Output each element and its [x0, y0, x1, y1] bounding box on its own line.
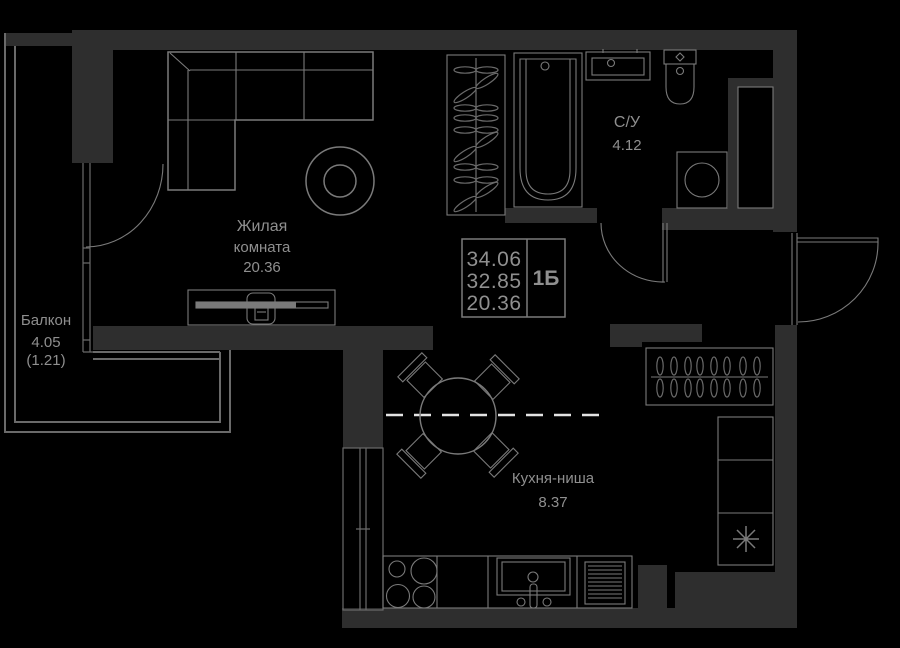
- wall-balcony-top: [5, 33, 72, 46]
- balcony-window: [83, 163, 93, 352]
- balcony-parapet: [93, 352, 220, 359]
- armchair: [306, 147, 374, 215]
- chair: [398, 353, 445, 400]
- wall-left-upper: [72, 30, 113, 163]
- info-living-area: 20.36: [466, 292, 521, 315]
- stove: [387, 558, 438, 608]
- wall-bathroom-bottom-left: [505, 208, 597, 223]
- bathroom-door-leaf: [663, 223, 667, 282]
- kitchen-counter: [383, 556, 632, 608]
- balcony-label: Балкон: [21, 312, 71, 329]
- living-room-label-2: комната: [234, 239, 291, 256]
- balcony-outer-wall: [5, 33, 230, 432]
- entry-door-swing-arc: [798, 242, 878, 322]
- info-flat-type: 1Б: [533, 267, 560, 290]
- wall-right-lower: [775, 325, 797, 627]
- tv-console: [188, 290, 335, 325]
- living-room-label-1: Жилая: [237, 218, 288, 235]
- toilet-tank: [664, 50, 696, 64]
- entry-door-leaf: [797, 238, 878, 242]
- wall-kitchen-chunk-b: [675, 572, 775, 608]
- wardrobe-living: [447, 55, 505, 215]
- wall-shaft-left: [728, 78, 738, 208]
- wall-kitchen-chunk-a: [638, 565, 667, 608]
- toilet: [664, 50, 696, 104]
- doors: [601, 223, 878, 325]
- bathtub-outline: [514, 53, 582, 207]
- bathroom-door: [601, 223, 667, 282]
- tv-screen: [196, 302, 296, 308]
- washing-machine: [677, 152, 727, 208]
- wall-shaft-top: [728, 78, 773, 87]
- living-room-area: 20.36: [243, 259, 281, 276]
- wall-living-bottom: [93, 326, 433, 350]
- balcony: Балкон 4.05 (1.21): [5, 33, 230, 432]
- entry-door: [792, 233, 878, 325]
- kitchen-cabinets: [718, 417, 773, 565]
- ventilation-shaft: [738, 87, 773, 208]
- bathtub: [514, 53, 582, 207]
- wall-bottom: [342, 608, 797, 628]
- entry-door-jamb: [792, 233, 797, 325]
- wall-bathroom-bottom-right: [662, 208, 773, 230]
- armchair-inner: [324, 165, 356, 197]
- washing-machine-drum: [685, 163, 719, 197]
- info-total-area: 34.06: [466, 248, 521, 271]
- balcony-area-coef: (1.21): [26, 352, 65, 369]
- living-room: Жилая комната 20.36: [168, 52, 374, 325]
- info-box: 34.06 32.85 20.36 1Б: [462, 239, 565, 317]
- info-reduced-area: 32.85: [466, 270, 521, 293]
- balcony-area: 4.05: [31, 334, 60, 351]
- kitchen-label: Кухня-ниша: [512, 470, 595, 487]
- bathroom-label: С/У: [614, 114, 641, 131]
- sofa-outline: [168, 52, 373, 190]
- dishwasher: [585, 562, 625, 604]
- bathroom-area: 4.12: [612, 137, 641, 154]
- counter-dividers: [437, 556, 577, 608]
- sink-vanity: [586, 49, 650, 80]
- walls: [5, 30, 797, 628]
- bathroom-door-swing-arc: [601, 223, 665, 282]
- tv-stand-base: [255, 308, 268, 320]
- wall-right-upper: [773, 30, 797, 232]
- bathtub-inner-2: [526, 59, 570, 194]
- chair: [472, 355, 519, 402]
- toilet-button: [676, 53, 684, 61]
- kitchen-sink: [497, 558, 570, 608]
- wall-top: [72, 30, 795, 50]
- sofa: [168, 52, 373, 190]
- toilet-detail: [677, 68, 684, 75]
- snowflake-icon: [733, 526, 759, 552]
- vanity-basin: [592, 58, 644, 75]
- vanity-faucet: [608, 60, 615, 67]
- kitchen-window: [343, 448, 383, 610]
- chair: [397, 431, 444, 478]
- kitchen-area: 8.37: [538, 494, 567, 511]
- cabinet-dividers: [718, 460, 773, 513]
- floor-plan: Балкон 4.05 (1.21) Жилая комната 20.36: [0, 0, 900, 648]
- toilet-bowl: [666, 64, 694, 104]
- sofa-cushions: [168, 52, 373, 190]
- wall-hall-kitchen-notch: [610, 324, 642, 347]
- bathtub-inner: [520, 59, 576, 200]
- armchair-outer: [306, 147, 374, 215]
- bathtub-drain: [541, 62, 549, 70]
- balcony-door-swing-arc: [86, 164, 163, 247]
- floor-plan-drawing: Балкон 4.05 (1.21) Жилая комната 20.36: [0, 0, 900, 648]
- vanity-outline: [586, 52, 650, 80]
- wardrobe-hall: [646, 348, 773, 405]
- kitchen-window-glazing: [356, 448, 370, 610]
- kitchen: Кухня-ниша 8.37: [343, 348, 773, 610]
- wall-kitchen-left-pillar: [343, 348, 383, 448]
